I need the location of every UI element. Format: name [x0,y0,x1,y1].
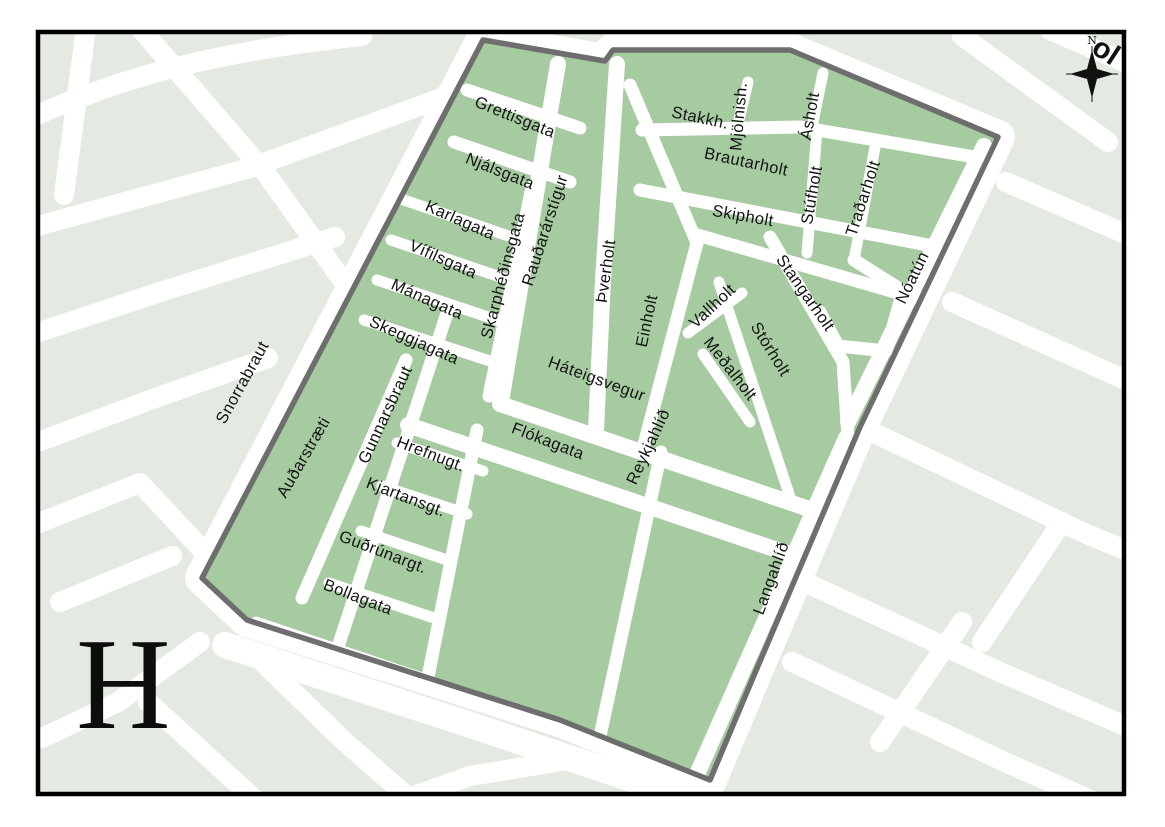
map-index-letter: H [76,612,171,757]
map-page: Grettisgata Njálsgata Karlagata Vífilsga… [0,0,1165,827]
compass-north-label: N [1087,34,1097,47]
map-canvas: Grettisgata Njálsgata Karlagata Vífilsga… [0,0,1165,827]
map-content: Grettisgata Njálsgata Karlagata Vífilsga… [30,28,1130,826]
